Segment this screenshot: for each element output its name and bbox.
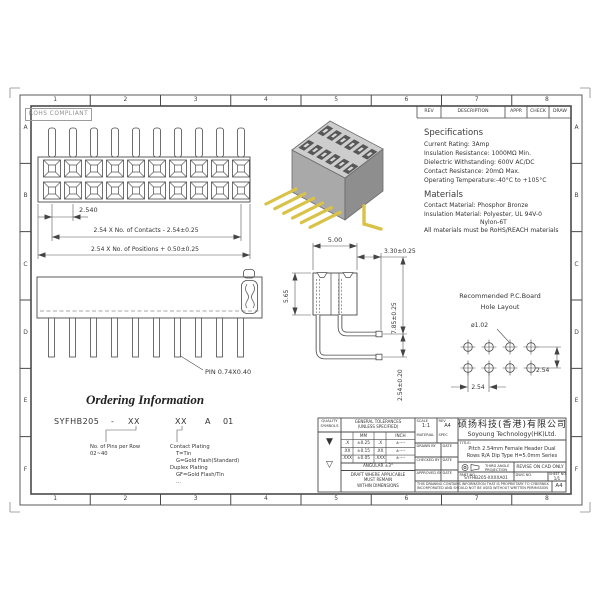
contact-cavity-chamfer	[86, 182, 103, 199]
contact-cavity-chamfer	[149, 160, 166, 177]
tol-r3-x2: .XXX	[374, 456, 386, 461]
company-name-cn: 硕扬科技(香港)有限公司	[458, 420, 566, 430]
zone-number-bottom: 2	[119, 496, 131, 503]
materials-title: Materials	[424, 191, 463, 201]
contact-cavity-inner	[196, 187, 203, 194]
front-pin	[49, 128, 56, 157]
contact-cavity-chamfer	[233, 182, 250, 199]
contact-cavity-chamfer	[86, 160, 103, 177]
tol-col-mm: MM	[353, 434, 374, 439]
contact-cavity-inner	[112, 165, 119, 172]
contact-cavity-chamfer	[170, 160, 187, 177]
checked-date-label: DATE	[443, 458, 452, 462]
zone-number-top: 8	[541, 97, 553, 104]
tol-r3-mm: ±0.05	[353, 456, 374, 461]
zone-number-bottom: 8	[541, 496, 553, 503]
contact-cavity-inner	[238, 165, 245, 172]
zone-number-bottom: 3	[190, 496, 202, 503]
order-plating-note1: Contact Plating	[170, 445, 210, 451]
projection-label2: PROJECTION	[485, 468, 507, 472]
contact-cavity-inner	[154, 165, 161, 172]
contact-cavity-chamfer	[170, 182, 187, 199]
tol-r3-inch: ±----	[386, 456, 415, 461]
zone-number-bottom: 7	[471, 496, 483, 503]
hole-pitch-vertical: 2.54	[536, 368, 549, 375]
hole-diameter: ø1.02	[471, 323, 488, 330]
zone-letter-left: C	[22, 262, 30, 269]
zone-letter-left: F	[22, 467, 30, 474]
spec-insulation: Insulation Resistance: 1000MΩ Min.	[424, 151, 531, 158]
order-plating-note5: GF=Gold Flash/Tin	[176, 473, 224, 479]
zone-number-top: 3	[190, 97, 202, 104]
bottom-pin	[49, 318, 55, 357]
contact-cavity-chamfer	[128, 160, 145, 177]
specs-title: Specifications	[424, 129, 483, 139]
contact-cavity-inner	[112, 187, 119, 194]
pcb-hole-crosshair	[461, 340, 476, 355]
zone-letter-left: B	[22, 193, 30, 200]
pcb-hole-crosshair	[461, 361, 476, 376]
front-pin	[196, 128, 203, 157]
order-code-series: SYFHB205	[54, 417, 99, 426]
dim-row1: 7.85±0.25	[392, 302, 399, 334]
material-note: All materials must be RoHS/REACH materia…	[424, 228, 559, 235]
company-name-en: Soyoung Technology(HK)Ltd.	[458, 431, 566, 438]
zone-number-bottom: 1	[49, 496, 61, 503]
bottom-pin	[217, 318, 223, 357]
contact-cavity-chamfer	[212, 182, 229, 199]
contact-cavity-inner	[70, 187, 77, 194]
contact-cavity-chamfer	[212, 160, 229, 177]
drawn-date-label: DATE	[443, 444, 452, 448]
revise-note: REVISE ON CAD ONLY	[514, 465, 566, 470]
material-insulation: Insulation Material: Polyester, UL 94V-0	[424, 212, 542, 219]
third-angle-projection-icon	[461, 463, 483, 472]
zone-letter-right: D	[573, 330, 581, 337]
contact-cavity-inner	[91, 165, 98, 172]
tol-r2-x2: .XX	[374, 449, 386, 454]
dim-pitch: 2.540	[79, 207, 98, 214]
contact-cavity-chamfer	[65, 182, 82, 199]
contact-cavity-inner	[133, 165, 140, 172]
order-code-a: A	[205, 417, 210, 426]
approved-by-label: APPROVED BY	[417, 471, 442, 475]
zone-number-top: 2	[119, 97, 131, 104]
contact-cavity-chamfer	[65, 160, 82, 177]
scale-value: 1:1	[415, 424, 437, 430]
material-label: MATERIAL	[417, 433, 435, 437]
drawing-sheet: ROHS COMPLIANT REV DESCRIPTION APPR CHEC…	[0, 0, 600, 600]
contact-cavity-inner	[154, 187, 161, 194]
contact-cavity-chamfer	[149, 182, 166, 199]
quality-symbol-open-triangle-icon: ▽	[318, 460, 341, 470]
spec-current: Current Rating: 3Amp	[424, 142, 489, 149]
order-code-plating: XX	[175, 417, 187, 426]
contact-cavity-chamfer	[44, 160, 61, 177]
tol-draft2: MUST REMAIN	[341, 478, 415, 483]
rev-col-draw: DRAW	[549, 109, 571, 114]
contact-cavity-inner	[175, 187, 182, 194]
drawing-title-line2: Rows R/A Dip Type H=5.0mm Series	[458, 454, 566, 460]
tol-angular: ANGULAR ±3°	[341, 464, 415, 469]
pcb-hole-crosshair	[503, 340, 518, 355]
disclaimer-line2: INCORPORATED AND SHOULD NOT BE USED WITH…	[417, 487, 548, 491]
front-pin	[112, 128, 119, 157]
dim-width: 5.00	[313, 237, 357, 244]
drawing-title-line1: Pitch 2.54mm Female Header Dual	[458, 447, 566, 453]
front-pin	[238, 128, 245, 157]
zone-letter-left: D	[22, 330, 30, 337]
zone-letter-right: E	[573, 398, 581, 405]
dwg-no-label: DWG NO.	[516, 473, 533, 477]
zone-letter-right: F	[573, 467, 581, 474]
hole-layout-dimensions	[451, 329, 561, 392]
order-code-suffix: 01	[223, 417, 233, 426]
bottom-pin	[238, 318, 244, 357]
dim-height: 5.65	[284, 290, 291, 303]
approved-date-label: DATE	[443, 471, 452, 475]
zone-letter-right: B	[573, 193, 581, 200]
rohs-label: ROHS COMPLIANT	[29, 111, 88, 118]
material-insulation2: Nylon-6T	[480, 220, 507, 227]
zone-letter-right: A	[573, 125, 581, 132]
contact-cavity-inner	[91, 187, 98, 194]
zone-number-bottom: 6	[400, 496, 412, 503]
bottom-pin	[112, 318, 118, 357]
front-pin	[91, 128, 98, 157]
zone-number-top: 5	[330, 97, 342, 104]
rohs-badge: ROHS COMPLIANT	[25, 108, 92, 121]
zone-letter-left: E	[22, 398, 30, 405]
front-view	[38, 157, 250, 202]
zone-number-bottom: 4	[260, 496, 272, 503]
spec-dielectric: Dielectric Withstanding: 600V AC/DC	[424, 160, 534, 167]
tol-r3-x: .XXX	[341, 456, 353, 461]
contact-cavity-inner	[175, 165, 182, 172]
contact-cavity-chamfer	[191, 182, 208, 199]
hole-layout-title1: Recommended P.C.Board	[440, 293, 560, 300]
tol-r1-x2: .X	[374, 441, 386, 446]
sheet-no-value: 1/1	[548, 477, 566, 482]
bottom-pin	[196, 318, 202, 357]
zone-letter-right: C	[573, 262, 581, 269]
tol-r2-x: .XX	[341, 449, 353, 454]
dim-tail: 3.30±0.25	[384, 249, 416, 256]
bottom-pin	[133, 318, 139, 357]
pcb-hole-crosshair	[482, 361, 497, 376]
bottom-pin	[175, 318, 181, 357]
tol-r1-x: .X	[341, 441, 353, 446]
title-label: TITLE:	[460, 441, 472, 445]
ordering-leaders	[106, 426, 182, 442]
order-plating-note2: T=Tin	[176, 452, 191, 458]
bottom-pin	[70, 318, 76, 357]
dim-row2: 2.54±0.20	[398, 369, 405, 401]
front-pin	[175, 128, 182, 157]
quality-symbol-filled-triangle-icon: ▼	[318, 437, 341, 447]
tol-draft3: WITHIN DIMENSIONS	[341, 484, 415, 489]
contact-cavity-chamfer	[107, 182, 124, 199]
contact-cavity-chamfer	[191, 160, 208, 177]
contact-cavity-inner	[217, 165, 224, 172]
order-code-pins: XX	[128, 417, 140, 426]
quality-header2: SYMBOLS	[318, 424, 341, 428]
order-plating-note4: Duplex Plating	[170, 466, 208, 472]
contact-cavity-inner	[217, 187, 224, 194]
contact-cavity-chamfer	[107, 160, 124, 177]
contact-cavity-inner	[238, 187, 245, 194]
tolerances-header2: (UNLESS SPECIFIED)	[341, 425, 415, 430]
contact-cavity-chamfer	[128, 182, 145, 199]
contact-cavity-inner	[196, 165, 203, 172]
zone-letter-left: A	[22, 125, 30, 132]
dim-positions: 2.54 X No. of Positions + 0.50±0.25	[35, 247, 255, 254]
front-pin	[217, 128, 224, 157]
pin-size-label: PIN 0.74X0.40	[205, 369, 251, 376]
rev-col-appr: APPR	[505, 109, 527, 114]
contact-cavity-inner	[70, 165, 77, 172]
hole-pitch-horizontal: 2.54	[466, 385, 490, 392]
rev-col-rev: REV	[417, 109, 441, 114]
order-pins-note1: No. of Pins per Row	[90, 445, 140, 451]
spec-contact: Contact Resistance: 20mΩ Max.	[424, 169, 520, 176]
side-view	[313, 273, 357, 315]
checked-by-label: CHECKED BY	[417, 458, 440, 462]
order-code-dash: -	[111, 417, 114, 426]
front-pin	[70, 128, 77, 157]
hole-layout-title2: Hole Layout	[440, 304, 560, 311]
order-plating-note6: ...	[176, 480, 181, 486]
side-view-dimensions	[292, 243, 407, 357]
spec-label: SPEC	[439, 433, 448, 437]
zone-number-bottom: 5	[330, 496, 342, 503]
dim-contacts: 2.54 X No. of Contacts - 2.54±0.25	[40, 228, 252, 235]
ordering-title: Ordering Information	[86, 393, 204, 408]
zone-number-top: 6	[400, 97, 412, 104]
zone-number-top: 1	[49, 97, 61, 104]
zone-number-top: 7	[471, 97, 483, 104]
contact-cavity-inner	[49, 165, 56, 172]
order-plating-note3: G=Gold Flash(Standard)	[176, 459, 239, 465]
material-contact: Contact Material: Phosphor Bronze	[424, 203, 528, 210]
tol-r2-mm: ±0.15	[353, 449, 374, 454]
zone-number-top: 4	[260, 97, 272, 104]
iso-bent-pin	[364, 206, 381, 229]
rev-col-description: DESCRIPTION	[441, 109, 505, 114]
tol-r1-inch: ±----	[386, 441, 415, 446]
pcb-hole-crosshair	[524, 340, 539, 355]
pcb-hole-crosshair	[503, 361, 518, 376]
tol-r1-mm: ±0.25	[353, 441, 374, 446]
contact-cavity-chamfer	[44, 182, 61, 199]
line-art	[0, 0, 600, 600]
bottom-pin	[91, 318, 97, 357]
pcb-hole-crosshair	[482, 340, 497, 355]
rev-col-check: CHECK	[527, 109, 549, 114]
contact-cavity-inner	[49, 187, 56, 194]
front-pin	[154, 128, 161, 157]
side-view-pins	[318, 315, 382, 360]
drawn-by-label: DRAWN BY	[417, 444, 436, 448]
rev-value: A4	[437, 424, 458, 430]
part-no-value: SYFHB205-XXXXA01	[458, 477, 514, 482]
front-pin	[133, 128, 140, 157]
paper-size-label: A4	[552, 483, 566, 489]
order-pins-note2: 02~40	[90, 452, 108, 458]
contact-cavity-inner	[133, 187, 140, 194]
spec-operating: Operating Temperature:-40°C to +105°C	[424, 178, 546, 185]
tol-r2-inch: ±----	[386, 449, 415, 454]
bottom-pin	[154, 318, 160, 357]
tol-col-inch: INCH	[386, 434, 415, 439]
contact-cavity-chamfer	[233, 160, 250, 177]
